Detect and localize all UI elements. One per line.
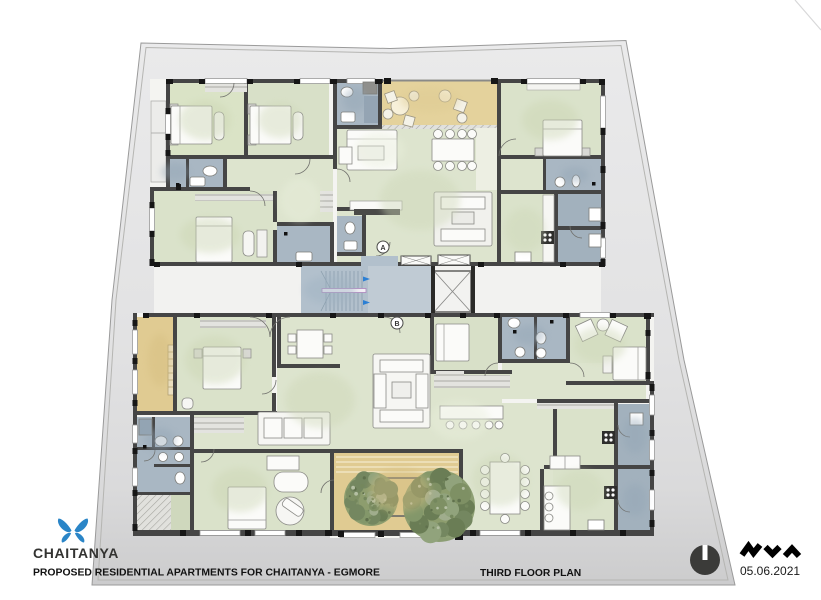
svg-text:05.06.2021: 05.06.2021 (740, 564, 800, 578)
svg-text:CHAITANYA: CHAITANYA (33, 545, 119, 561)
svg-text:A: A (380, 245, 385, 252)
svg-text:PROPOSED RESIDENTIAL APARTMENT: PROPOSED RESIDENTIAL APARTMENTS FOR CHAI… (33, 568, 380, 579)
svg-text:B: B (394, 321, 399, 328)
svg-text:THIRD FLOOR PLAN: THIRD FLOOR PLAN (480, 568, 581, 579)
